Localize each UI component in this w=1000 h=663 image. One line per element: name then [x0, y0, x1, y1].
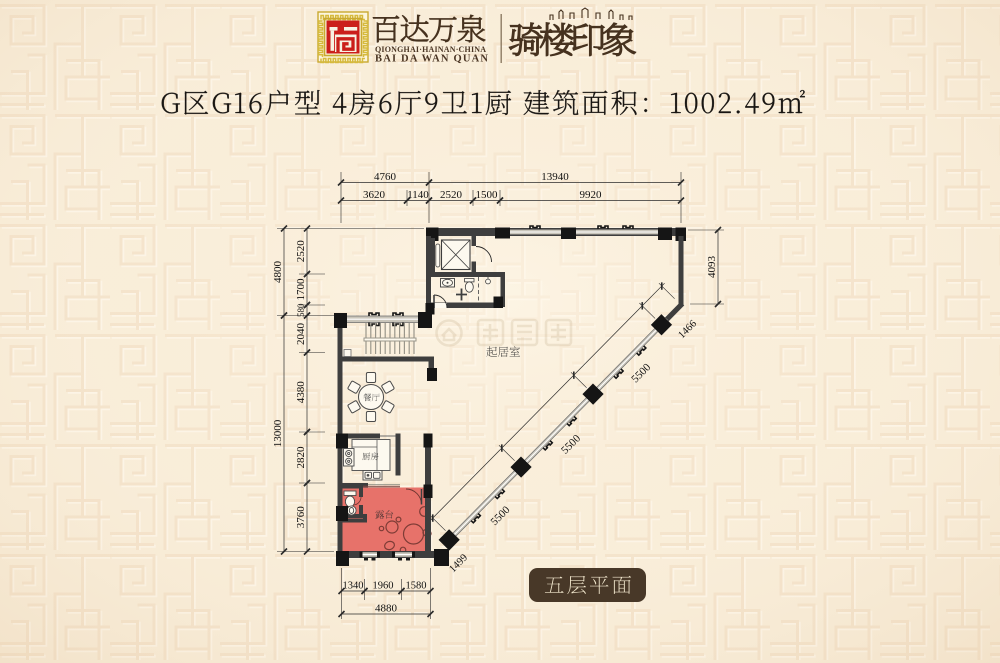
svg-text:4093: 4093: [706, 256, 718, 279]
svg-text:13940: 13940: [541, 171, 569, 183]
svg-text:2820: 2820: [295, 446, 307, 469]
svg-text:1700: 1700: [295, 278, 307, 301]
svg-text:1580: 1580: [406, 581, 427, 592]
svg-text:BAI DA WAN QUAN: BAI DA WAN QUAN: [375, 54, 488, 65]
svg-text:1340: 1340: [343, 581, 364, 592]
svg-text:4800: 4800: [272, 261, 284, 284]
svg-text:2520: 2520: [295, 240, 307, 263]
svg-text:1500: 1500: [476, 189, 499, 201]
svg-text:3760: 3760: [295, 506, 307, 529]
svg-text:580: 580: [296, 303, 306, 317]
svg-text:1140: 1140: [407, 189, 429, 201]
svg-text:4380: 4380: [295, 381, 307, 404]
svg-text:1960: 1960: [373, 581, 394, 592]
svg-text:4760: 4760: [374, 171, 397, 183]
svg-text:2520: 2520: [440, 189, 463, 201]
svg-text:13000: 13000: [272, 419, 284, 447]
svg-text:4880: 4880: [375, 603, 398, 615]
svg-text:3620: 3620: [363, 189, 386, 201]
svg-text:9920: 9920: [580, 189, 603, 201]
svg-text:2040: 2040: [295, 323, 307, 346]
